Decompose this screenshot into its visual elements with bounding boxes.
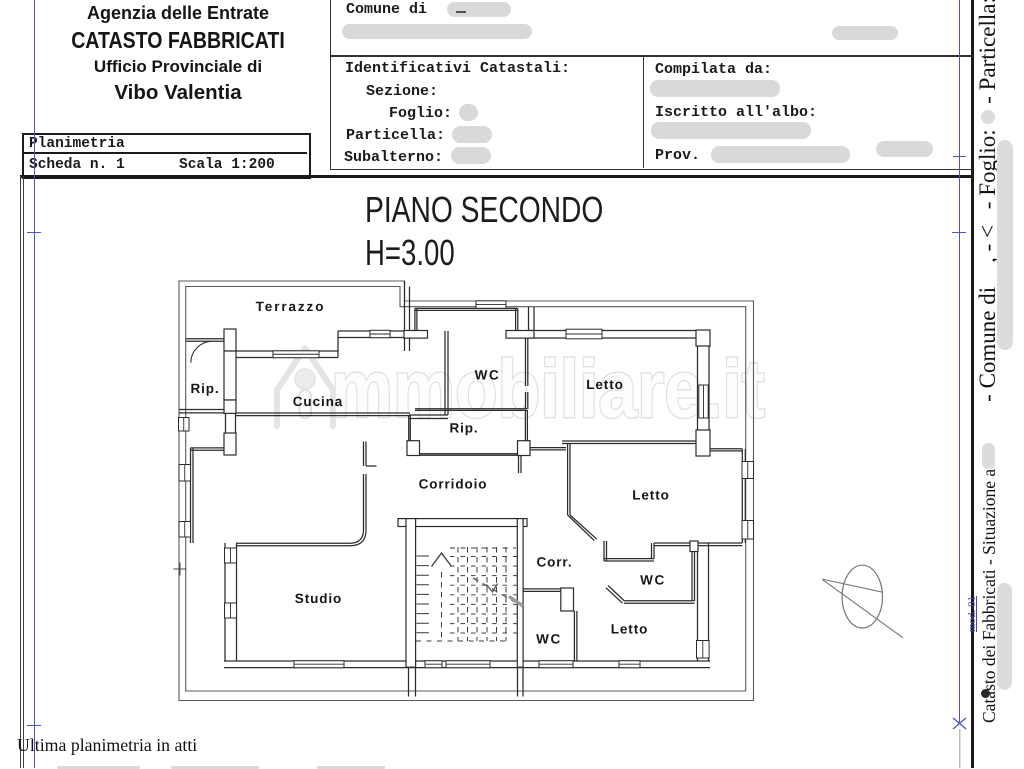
svg-text:Rip.: Rip. [449,421,478,436]
svg-text:Corridoio: Corridoio [419,477,488,492]
svg-text:Cucina: Cucina [293,394,343,409]
svg-text:Letto: Letto [611,622,649,637]
svg-text:Letto: Letto [632,488,670,503]
svg-text:Terrazzo: Terrazzo [256,299,326,314]
svg-text:WC: WC [536,632,562,647]
svg-text:Corr.: Corr. [536,555,572,570]
svg-text:WC: WC [475,368,501,383]
svg-text:Studio: Studio [295,591,342,606]
svg-text:Rip.: Rip. [190,381,219,396]
svg-text:WC: WC [640,573,666,588]
svg-text:Letto: Letto [586,377,624,392]
